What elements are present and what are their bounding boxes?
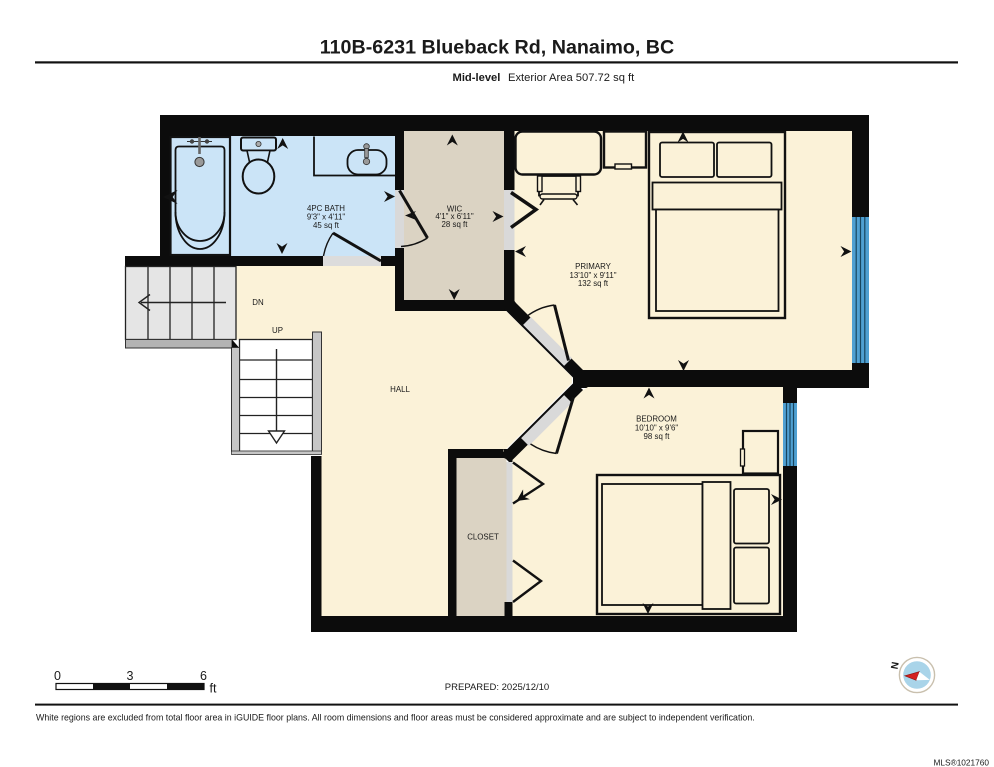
svg-text:6: 6 bbox=[200, 669, 207, 683]
svg-text:UP: UP bbox=[272, 326, 283, 335]
svg-text:MLS®1021760: MLS®1021760 bbox=[934, 758, 990, 767]
svg-text:Mid-level: Mid-level bbox=[453, 72, 501, 84]
svg-text:45 sq ft: 45 sq ft bbox=[313, 221, 340, 230]
svg-text:White regions are excluded fro: White regions are excluded from total fl… bbox=[36, 713, 755, 723]
svg-text:BEDROOM: BEDROOM bbox=[636, 415, 677, 424]
svg-text:PREPARED: 2025/12/10: PREPARED: 2025/12/10 bbox=[445, 682, 549, 693]
svg-text:CLOSET: CLOSET bbox=[467, 533, 499, 542]
svg-text:HALL: HALL bbox=[390, 385, 410, 394]
svg-text:Exterior Area 507.72 sq ft: Exterior Area 507.72 sq ft bbox=[508, 72, 635, 84]
svg-text:28 sq ft: 28 sq ft bbox=[442, 220, 469, 229]
svg-text:98 sq ft: 98 sq ft bbox=[644, 432, 671, 441]
svg-text:132 sq ft: 132 sq ft bbox=[578, 279, 609, 288]
svg-text:ft: ft bbox=[210, 682, 217, 696]
svg-text:0: 0 bbox=[54, 669, 61, 683]
svg-text:3: 3 bbox=[127, 669, 134, 683]
svg-text:DN: DN bbox=[252, 298, 264, 307]
svg-text:110B-6231 Blueback Rd, Nanaimo: 110B-6231 Blueback Rd, Nanaimo, BC bbox=[320, 37, 675, 59]
svg-text:PRIMARY: PRIMARY bbox=[575, 262, 612, 271]
